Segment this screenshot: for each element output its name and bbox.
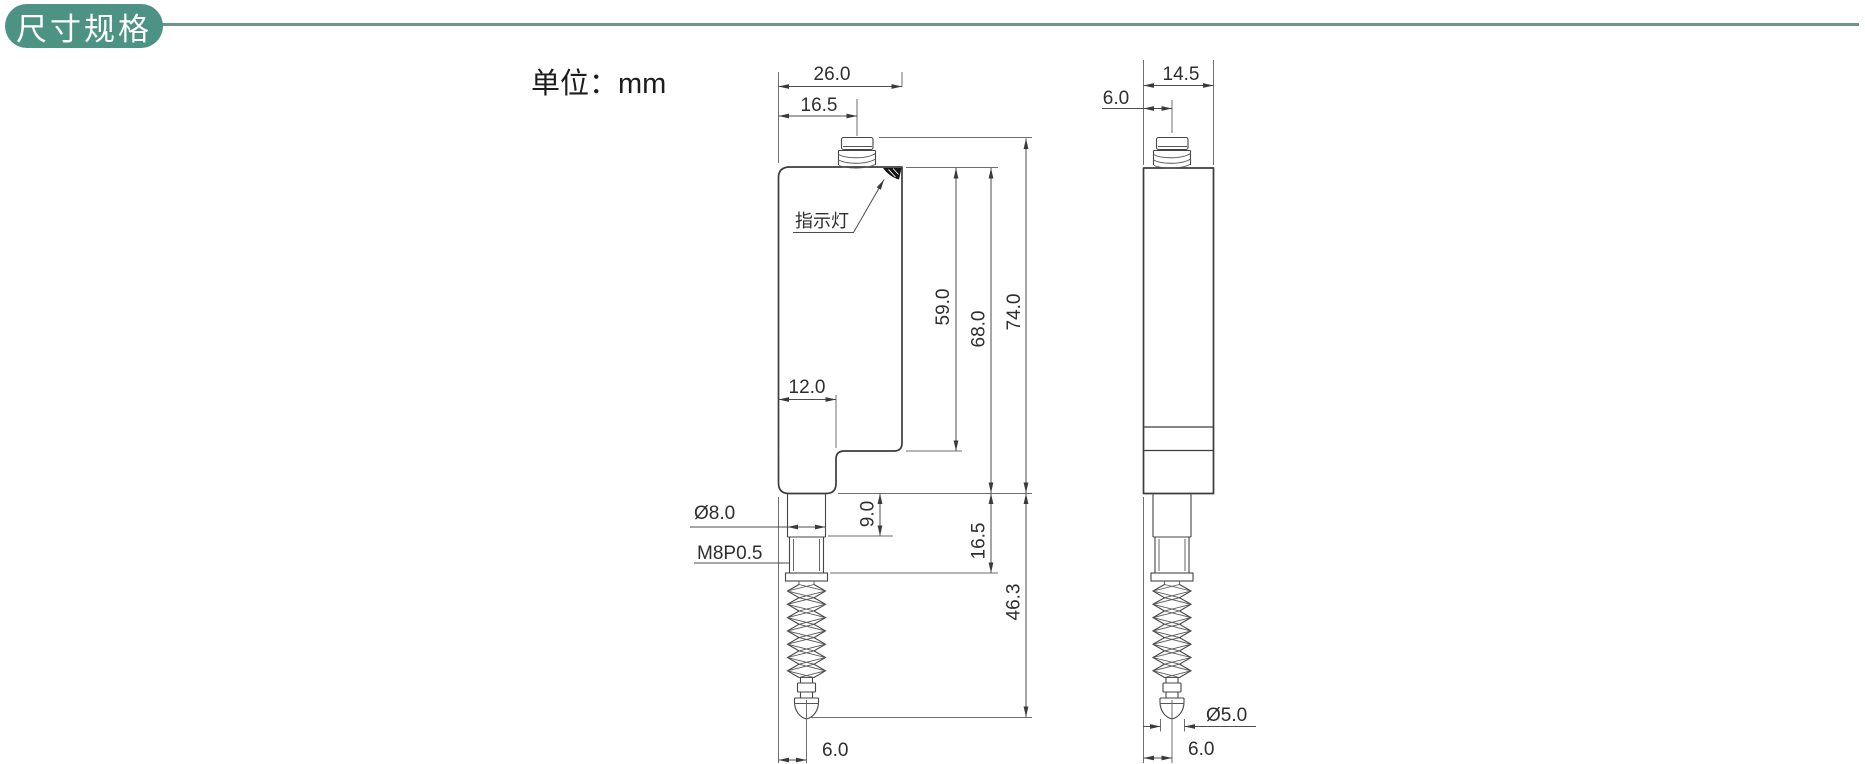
front-view: 指示灯 (779, 138, 903, 764)
indicator-callout-label: 指示灯 (795, 211, 849, 231)
front-dimension-lines (690, 87, 1026, 761)
dim-label-tip-diameter: Ø5.0 (1206, 705, 1247, 726)
indicator-callout-arrow (877, 178, 886, 189)
dim-label-probe-length: 46.3 (1004, 584, 1025, 621)
dimension-arrowheads (779, 83, 1214, 762)
dim-label-connector-offset: 6.0 (1103, 88, 1129, 109)
dim-label-upper-height: 59.0 (933, 289, 954, 326)
dim-label-thread-length: 16.5 (969, 523, 990, 560)
dim-label-side-width: 14.5 (1163, 64, 1200, 85)
side-dimension-lines (1102, 86, 1256, 759)
dim-label-top-offset: 16.5 (801, 95, 838, 116)
front-connector (839, 138, 876, 169)
dim-label-front-tip-offset: 6.0 (822, 740, 848, 761)
dim-label-lower-width: 12.0 (789, 377, 826, 398)
side-body-seam-lines (1144, 427, 1214, 451)
dimension-drawing: 指示灯 (0, 0, 1865, 764)
dim-label-thread-spec: M8P0.5 (697, 543, 762, 564)
dim-label-body-height: 68.0 (969, 311, 990, 348)
dim-label-stem-length: 9.0 (858, 501, 879, 527)
side-connector (1154, 138, 1191, 169)
dim-label-top-width: 26.0 (814, 64, 851, 85)
dim-label-side-tip-offset: 6.0 (1188, 739, 1214, 760)
dim-label-stem-diameter: Ø8.0 (694, 503, 735, 524)
side-view (1144, 138, 1214, 764)
side-probe (1151, 494, 1193, 764)
dim-label-total-height: 74.0 (1004, 294, 1025, 331)
page: 尺寸规格 单位：mm (0, 0, 1865, 764)
side-body-outline (1144, 168, 1214, 494)
front-probe (786, 494, 828, 764)
